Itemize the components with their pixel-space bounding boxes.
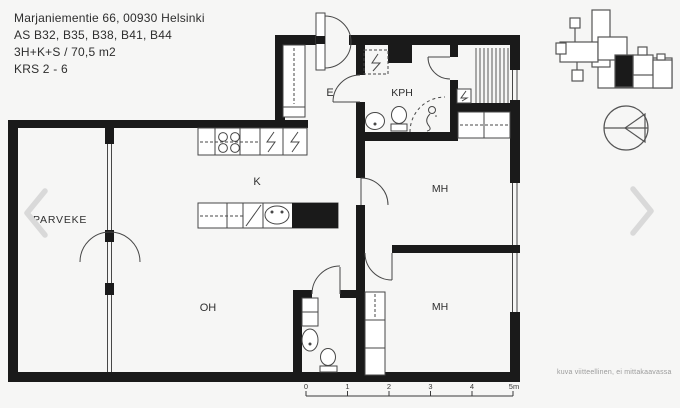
wc-shelf	[302, 298, 318, 326]
scale-label-4: 4	[470, 382, 474, 391]
scale-label-0: 0	[304, 382, 308, 391]
kitchen-island	[198, 203, 338, 228]
room-label-kitchen: K	[253, 176, 261, 188]
wardrobes	[365, 112, 510, 375]
washing-machine-slot	[364, 50, 388, 74]
bathroom-sink	[366, 113, 385, 130]
prev-image-button[interactable]	[16, 184, 52, 240]
room-label-living: OH	[200, 302, 217, 314]
bedroom1-door	[361, 178, 388, 205]
sauna-stove	[457, 89, 471, 103]
room-label-entry: E	[326, 87, 333, 99]
wc-door	[312, 266, 340, 294]
shower-area-line	[410, 97, 445, 132]
compass-icon	[604, 106, 648, 150]
wc-fixtures	[302, 298, 337, 372]
scale-label-2: 2	[387, 382, 391, 391]
scale-bar: 0 1 2 3 4 5m	[304, 382, 519, 396]
highlighted-unit	[615, 55, 633, 87]
sauna-benches	[476, 48, 508, 103]
entry-closet	[283, 45, 305, 117]
bedroom2-wardrobe	[365, 292, 385, 375]
bathroom-door	[333, 75, 360, 102]
room-label-bedroom1: MH	[432, 183, 448, 195]
next-image-button[interactable]	[624, 182, 660, 238]
sauna	[457, 48, 508, 103]
scale-label-3: 3	[428, 382, 432, 391]
sauna-door	[428, 57, 450, 79]
kitchen-counter	[198, 128, 307, 155]
kitchen-fixtures	[198, 128, 338, 228]
chevron-left-icon	[16, 184, 52, 240]
room-label-bedroom2: MH	[432, 301, 448, 313]
disclaimer-text: kuva viitteellinen, ei mittakaavassa	[557, 369, 672, 376]
scale-label-1: 1	[345, 382, 349, 391]
chevron-right-icon	[624, 182, 660, 238]
room-label-bathroom: KPH	[391, 87, 413, 99]
entrance-door	[316, 13, 351, 70]
shower-icon	[427, 107, 437, 132]
scale-label-5m: 5m	[509, 382, 519, 391]
bedroom1-wardrobe	[458, 112, 510, 138]
wc-sink	[302, 329, 318, 351]
site-plan	[556, 10, 672, 88]
floor-plan: PARVEKE E KPH K MH MH OH 0 1 2 3 4 5m	[0, 0, 680, 408]
floorplan-image-viewer: Marjaniementie 66, 00930 Helsinki AS B32…	[0, 0, 680, 408]
wc-toilet	[320, 349, 337, 373]
bedroom2-door	[365, 253, 392, 280]
bathroom-toilet	[391, 107, 407, 132]
